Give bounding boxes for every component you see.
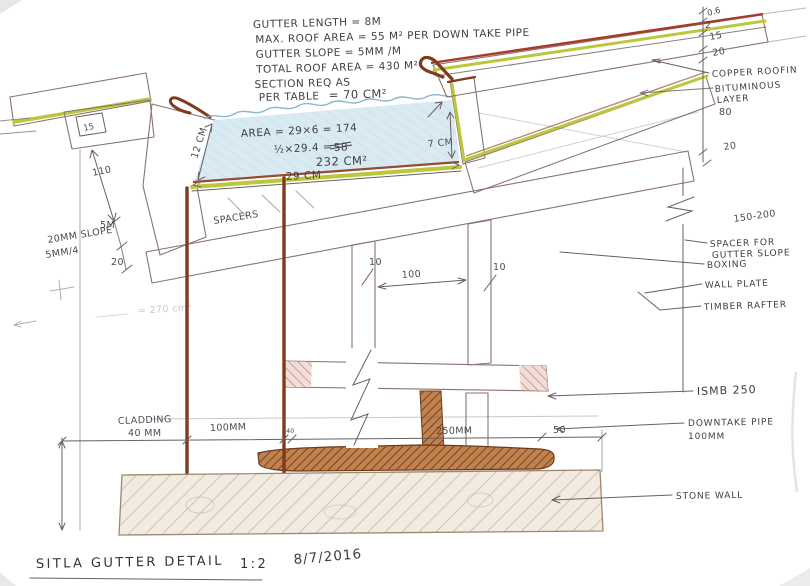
note-total-roof-area: TOTAL ROOF AREA = 430 M²	[255, 60, 419, 76]
leader-10-left	[362, 269, 373, 285]
dim-line-100	[378, 278, 466, 289]
label-downtake-pipe: DOWNTAKE PIPE	[688, 418, 774, 429]
dim-15: 15	[83, 122, 96, 134]
leader-ismb	[548, 391, 693, 399]
note-gutter-slope: GUTTER SLOPE = 5MM /M	[256, 45, 402, 61]
dim-0.6: 0.6	[706, 6, 722, 19]
dim-2: 2	[705, 20, 711, 31]
label-ismb-250: ISMB 250	[697, 383, 757, 398]
note-section-req-2: PER TABLE	[259, 90, 320, 104]
downpipes	[187, 178, 284, 524]
lower-roof-slab	[465, 77, 715, 193]
leader-spacer	[685, 240, 707, 243]
drawing-date: 8/7/2016	[293, 546, 363, 568]
beam-assembly	[258, 348, 554, 471]
label-boxing: BOXING	[707, 260, 748, 271]
dim-80: 80	[719, 107, 732, 118]
leader-boxing	[560, 252, 704, 264]
dim-100: 100	[401, 269, 421, 281]
dim-line-wall-height	[59, 438, 65, 530]
stone-wall	[119, 470, 603, 535]
dim-250mm: 250MM	[436, 425, 473, 437]
beam-bottom-flange	[258, 445, 554, 471]
left-edge-arrow	[14, 321, 36, 327]
stone-wall-body	[119, 470, 603, 535]
faint-calc: = 270 cm²	[137, 302, 192, 317]
beam-web	[420, 391, 444, 450]
timber-packing	[466, 393, 488, 449]
label-copper-roofing: COPPER ROOFIN	[712, 66, 798, 80]
dim-150-200: 150-200	[733, 208, 777, 225]
label-timber-rafter: TIMBER RAFTER	[703, 300, 787, 313]
dim-10-right: 10	[493, 262, 506, 273]
dim-15-right: 15	[709, 30, 724, 43]
dim-line-110	[90, 150, 116, 221]
sketch-sheet: 15	[0, 0, 810, 586]
dim-40: 40	[286, 427, 294, 435]
faint-stroke	[96, 314, 128, 317]
leader-10-right	[484, 275, 496, 291]
top-plate	[284, 361, 548, 391]
label-bituminous-1: BITUMINOUS	[715, 80, 782, 95]
label-bituminous-2: LAYER	[717, 94, 750, 106]
lower-roof-lining	[464, 76, 707, 160]
right-annotations: 0.6 2 15 20 20 COPPER ROOFIN BITUMINOUS …	[548, 6, 798, 503]
label-stone-wall: STONE WALL	[676, 491, 743, 502]
dim-10-left: 10	[369, 257, 382, 268]
posts	[352, 220, 491, 367]
leader-copper	[652, 59, 709, 73]
leader-timber-rafter	[638, 292, 701, 310]
dim-110: 110	[91, 164, 112, 179]
label-spacers: SPACERS	[213, 209, 260, 227]
dim-20-right: 20	[712, 46, 727, 59]
label-downtake-size: 100MM	[688, 432, 725, 442]
dim-cladding: CLADDING	[118, 414, 172, 427]
note-slope-2: 5MM/4	[45, 245, 80, 261]
dim-100mm: 100MM	[210, 422, 247, 434]
left-eave: 15	[0, 73, 154, 530]
dim-cladding-size: 40 MM	[128, 428, 162, 439]
post-right	[468, 220, 491, 365]
title-block: SITLA GUTTER DETAIL 1:2 8/7/2016	[30, 546, 363, 580]
dim-7cm: 7 CM	[427, 137, 453, 150]
break-gap	[346, 348, 378, 448]
leader-wall-plate	[645, 284, 702, 293]
label-wall-plate: WALL PLATE	[705, 279, 769, 291]
drawing-scale: 1:2	[240, 557, 268, 572]
lower-roof-felt-line	[466, 72, 706, 156]
dim-29cm: 29 CM	[286, 169, 322, 183]
roof-continuation-lines	[763, 8, 806, 42]
copper-drip-left	[170, 98, 210, 117]
drawing-title: SITLA GUTTER DETAIL	[36, 554, 224, 572]
gutter-detail-drawing: 15	[0, 0, 810, 586]
dim-20b-right: 20	[723, 140, 737, 153]
mid-dimensions: 100 10 10	[362, 257, 506, 291]
left-dimensions: 110 5M 20 20MM SLOPE 5MM/4 = 270 cm²	[14, 150, 192, 327]
top-plate-end-left	[284, 361, 312, 387]
tick-mark	[50, 280, 74, 300]
title-underline	[30, 578, 262, 580]
leader-downtake	[556, 423, 684, 432]
label-spacer-2: GUTTER SLOPE	[712, 248, 791, 261]
note-section-req-value: = 70 CM²	[329, 87, 388, 103]
note-gutter-length: GUTTER LENGTH = 8M	[253, 16, 382, 31]
top-plate-end-right	[519, 365, 548, 391]
dim-20-left: 20	[111, 257, 124, 268]
calc-area-total: 232 CM²	[316, 153, 368, 169]
break-gap-right	[660, 196, 698, 224]
